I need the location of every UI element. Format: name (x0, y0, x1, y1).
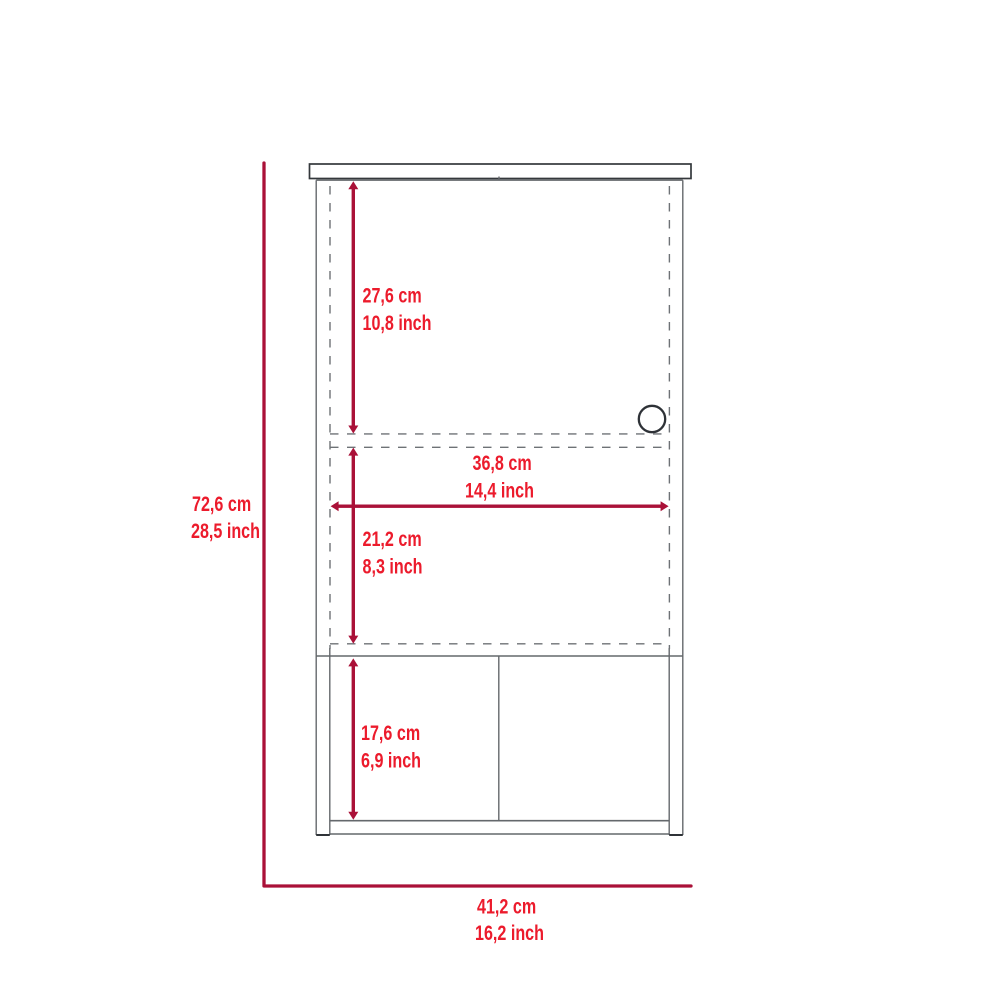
svg-text:16,2 inch: 16,2 inch (475, 922, 544, 946)
svg-text:27,6 cm: 27,6 cm (363, 284, 422, 308)
svg-text:10,8 inch: 10,8 inch (363, 312, 432, 336)
svg-text:36,8 cm: 36,8 cm (473, 452, 532, 476)
svg-text:41,2 cm: 41,2 cm (477, 895, 536, 919)
svg-text:17,6 cm: 17,6 cm (361, 722, 420, 746)
svg-text:72,6 cm: 72,6 cm (192, 493, 251, 517)
svg-text:8,3 inch: 8,3 inch (363, 555, 423, 579)
svg-text:14,4 inch: 14,4 inch (465, 479, 534, 503)
svg-text:28,5 inch: 28,5 inch (191, 520, 260, 544)
svg-text:6,9 inch: 6,9 inch (361, 749, 421, 773)
svg-text:21,2 cm: 21,2 cm (363, 528, 422, 552)
